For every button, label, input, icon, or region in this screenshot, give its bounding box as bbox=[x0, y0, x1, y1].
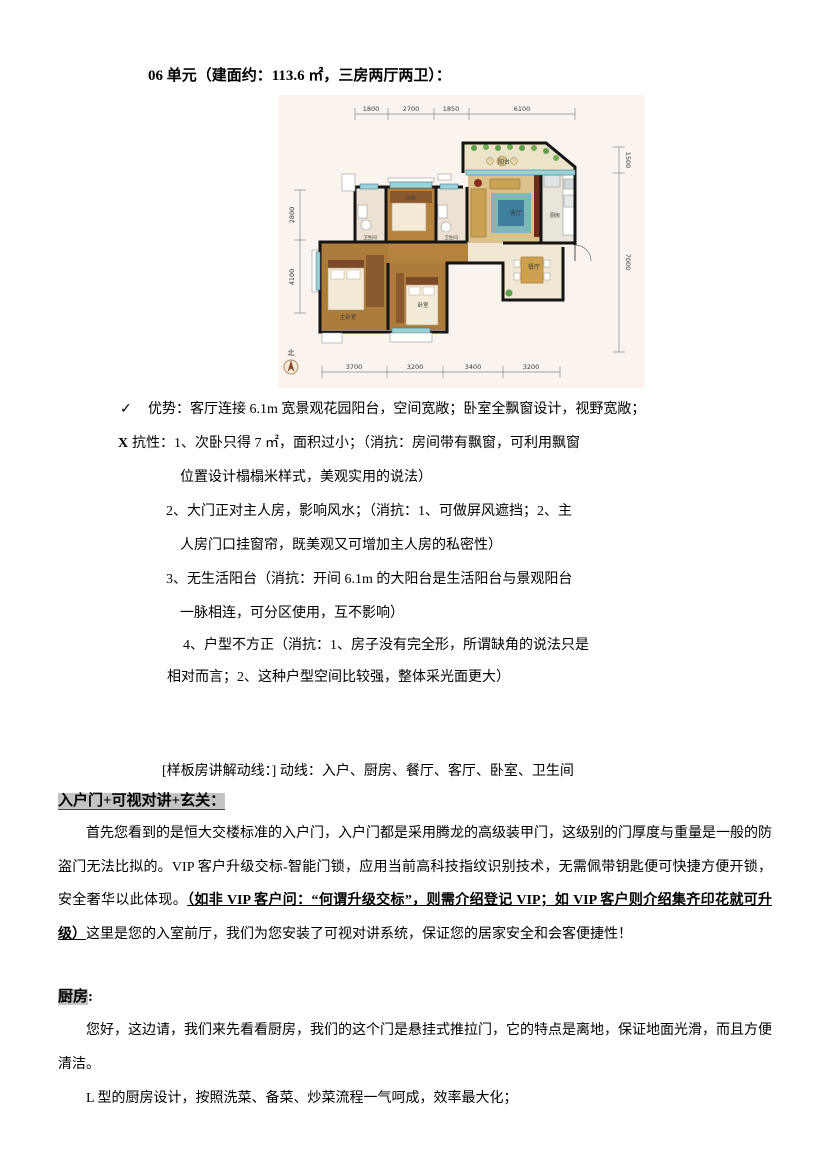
resistance-line-1a: 抗性：1、次卧只得 7 ㎡，面积过小；（消抗：房间带有飘窗，可利用飘窗 bbox=[132, 435, 580, 453]
check-icon: ✓ bbox=[120, 401, 132, 419]
resistance-line-2b: 人房门口挂窗帘，既美观又可增加主人房的私密性） bbox=[180, 537, 502, 555]
room-label-master: 主卧室 bbox=[340, 313, 357, 321]
floorplan-svg: 1800 2700 1850 6100 1500 7000 2800 4100 … bbox=[278, 95, 645, 388]
document-page: 06 单元（建面约：113.6 ㎡，三房两厅两卫）： bbox=[0, 0, 827, 1169]
room-label-balcony: 阳台 bbox=[498, 158, 510, 166]
kitchen-paragraph-1: 您好，这边请，我们来先看看厨房，我们的这个门是悬挂式推拉门，它的特点是离地，保证… bbox=[58, 1014, 772, 1081]
entry-paragraph: 首先您看到的是恒大交楼标准的入户门，入户门都是采用腾龙的高级装甲门，这级别的门厚… bbox=[58, 817, 772, 951]
section-heading-entry: 入户门+可视对讲+玄关： bbox=[58, 793, 225, 810]
resistance-line-3b: 一脉相连，可分区使用，互不影响） bbox=[180, 605, 404, 623]
dimension-label: 1800 bbox=[363, 105, 380, 113]
room-label-bath2: 卫生间 bbox=[444, 234, 458, 241]
dimension-label: 3200 bbox=[407, 363, 424, 371]
section-heading-kitchen: 厨房 bbox=[58, 989, 88, 1005]
north-label: 北 bbox=[288, 349, 295, 357]
resistance-line-1b: 位置设计榻榻米样式，美观实用的说法） bbox=[180, 469, 432, 487]
dimension-label: 1500 bbox=[624, 152, 632, 169]
cross-icon: X bbox=[118, 435, 128, 453]
unit-title: 06 单元（建面约：113.6 ㎡，三房两厅两卫）： bbox=[148, 64, 451, 85]
room-label-bedroom2: 次卧 bbox=[405, 194, 417, 202]
resistance-line-3a: 3、无生活阳台（消抗：开间 6.1m 的大阳台是生活阳台与景观阳台 bbox=[166, 571, 572, 589]
room-label-kitchen: 厨房 bbox=[550, 212, 560, 219]
tour-route-line: [样板房讲解动线：] 动线：入户、厨房、餐厅、客厅、卧室、卫生间 bbox=[162, 763, 574, 781]
floorplan-image: 1800 2700 1850 6100 1500 7000 2800 4100 … bbox=[278, 95, 645, 388]
dimension-label: 4100 bbox=[288, 269, 296, 286]
kitchen-paragraph-2: L 型的厨房设计，按照洗菜、备菜、炒菜流程一气呵成，效率最大化； bbox=[58, 1082, 772, 1116]
dimension-label: 3200 bbox=[523, 363, 540, 371]
resistance-line-2a: 2、大门正对主人房，影响风水；（消抗：1、可做屏风遮挡；2、主 bbox=[166, 503, 572, 521]
dimension-label: 7000 bbox=[624, 254, 632, 271]
entry-paragraph-end: 这里是您的入室前厅，我们为您安装了可视对讲系统，保证您的居家安全和会客便捷性！ bbox=[86, 927, 632, 942]
room-label-bath1: 卫生间 bbox=[363, 234, 377, 241]
dimension-label: 3400 bbox=[465, 363, 482, 371]
resistance-line-4b: 相对而言；2、这种户型空间比较强，整体采光面更大） bbox=[167, 669, 510, 687]
section-heading-kitchen-colon: : bbox=[88, 989, 93, 1005]
room-label-dining: 餐厅 bbox=[528, 263, 540, 271]
dimension-label: 2700 bbox=[403, 105, 420, 113]
room-label-living: 客厅 bbox=[510, 209, 522, 217]
dimension-label: 1850 bbox=[443, 105, 460, 113]
resistance-line-4a: 4、户型不方正（消抗：1、房子没有完全形，所谓缺角的说法只是 bbox=[183, 637, 589, 655]
room-label-bedroom: 卧室 bbox=[417, 301, 429, 309]
dimension-label: 3700 bbox=[346, 363, 363, 371]
advantage-line: 优势：客厅连接 6.1m 宽景观花园阳台，空间宽敞；卧室全飘窗设计，视野宽敞； bbox=[148, 401, 645, 419]
dimension-label: 6100 bbox=[514, 105, 531, 113]
dimension-label: 2800 bbox=[288, 207, 296, 224]
